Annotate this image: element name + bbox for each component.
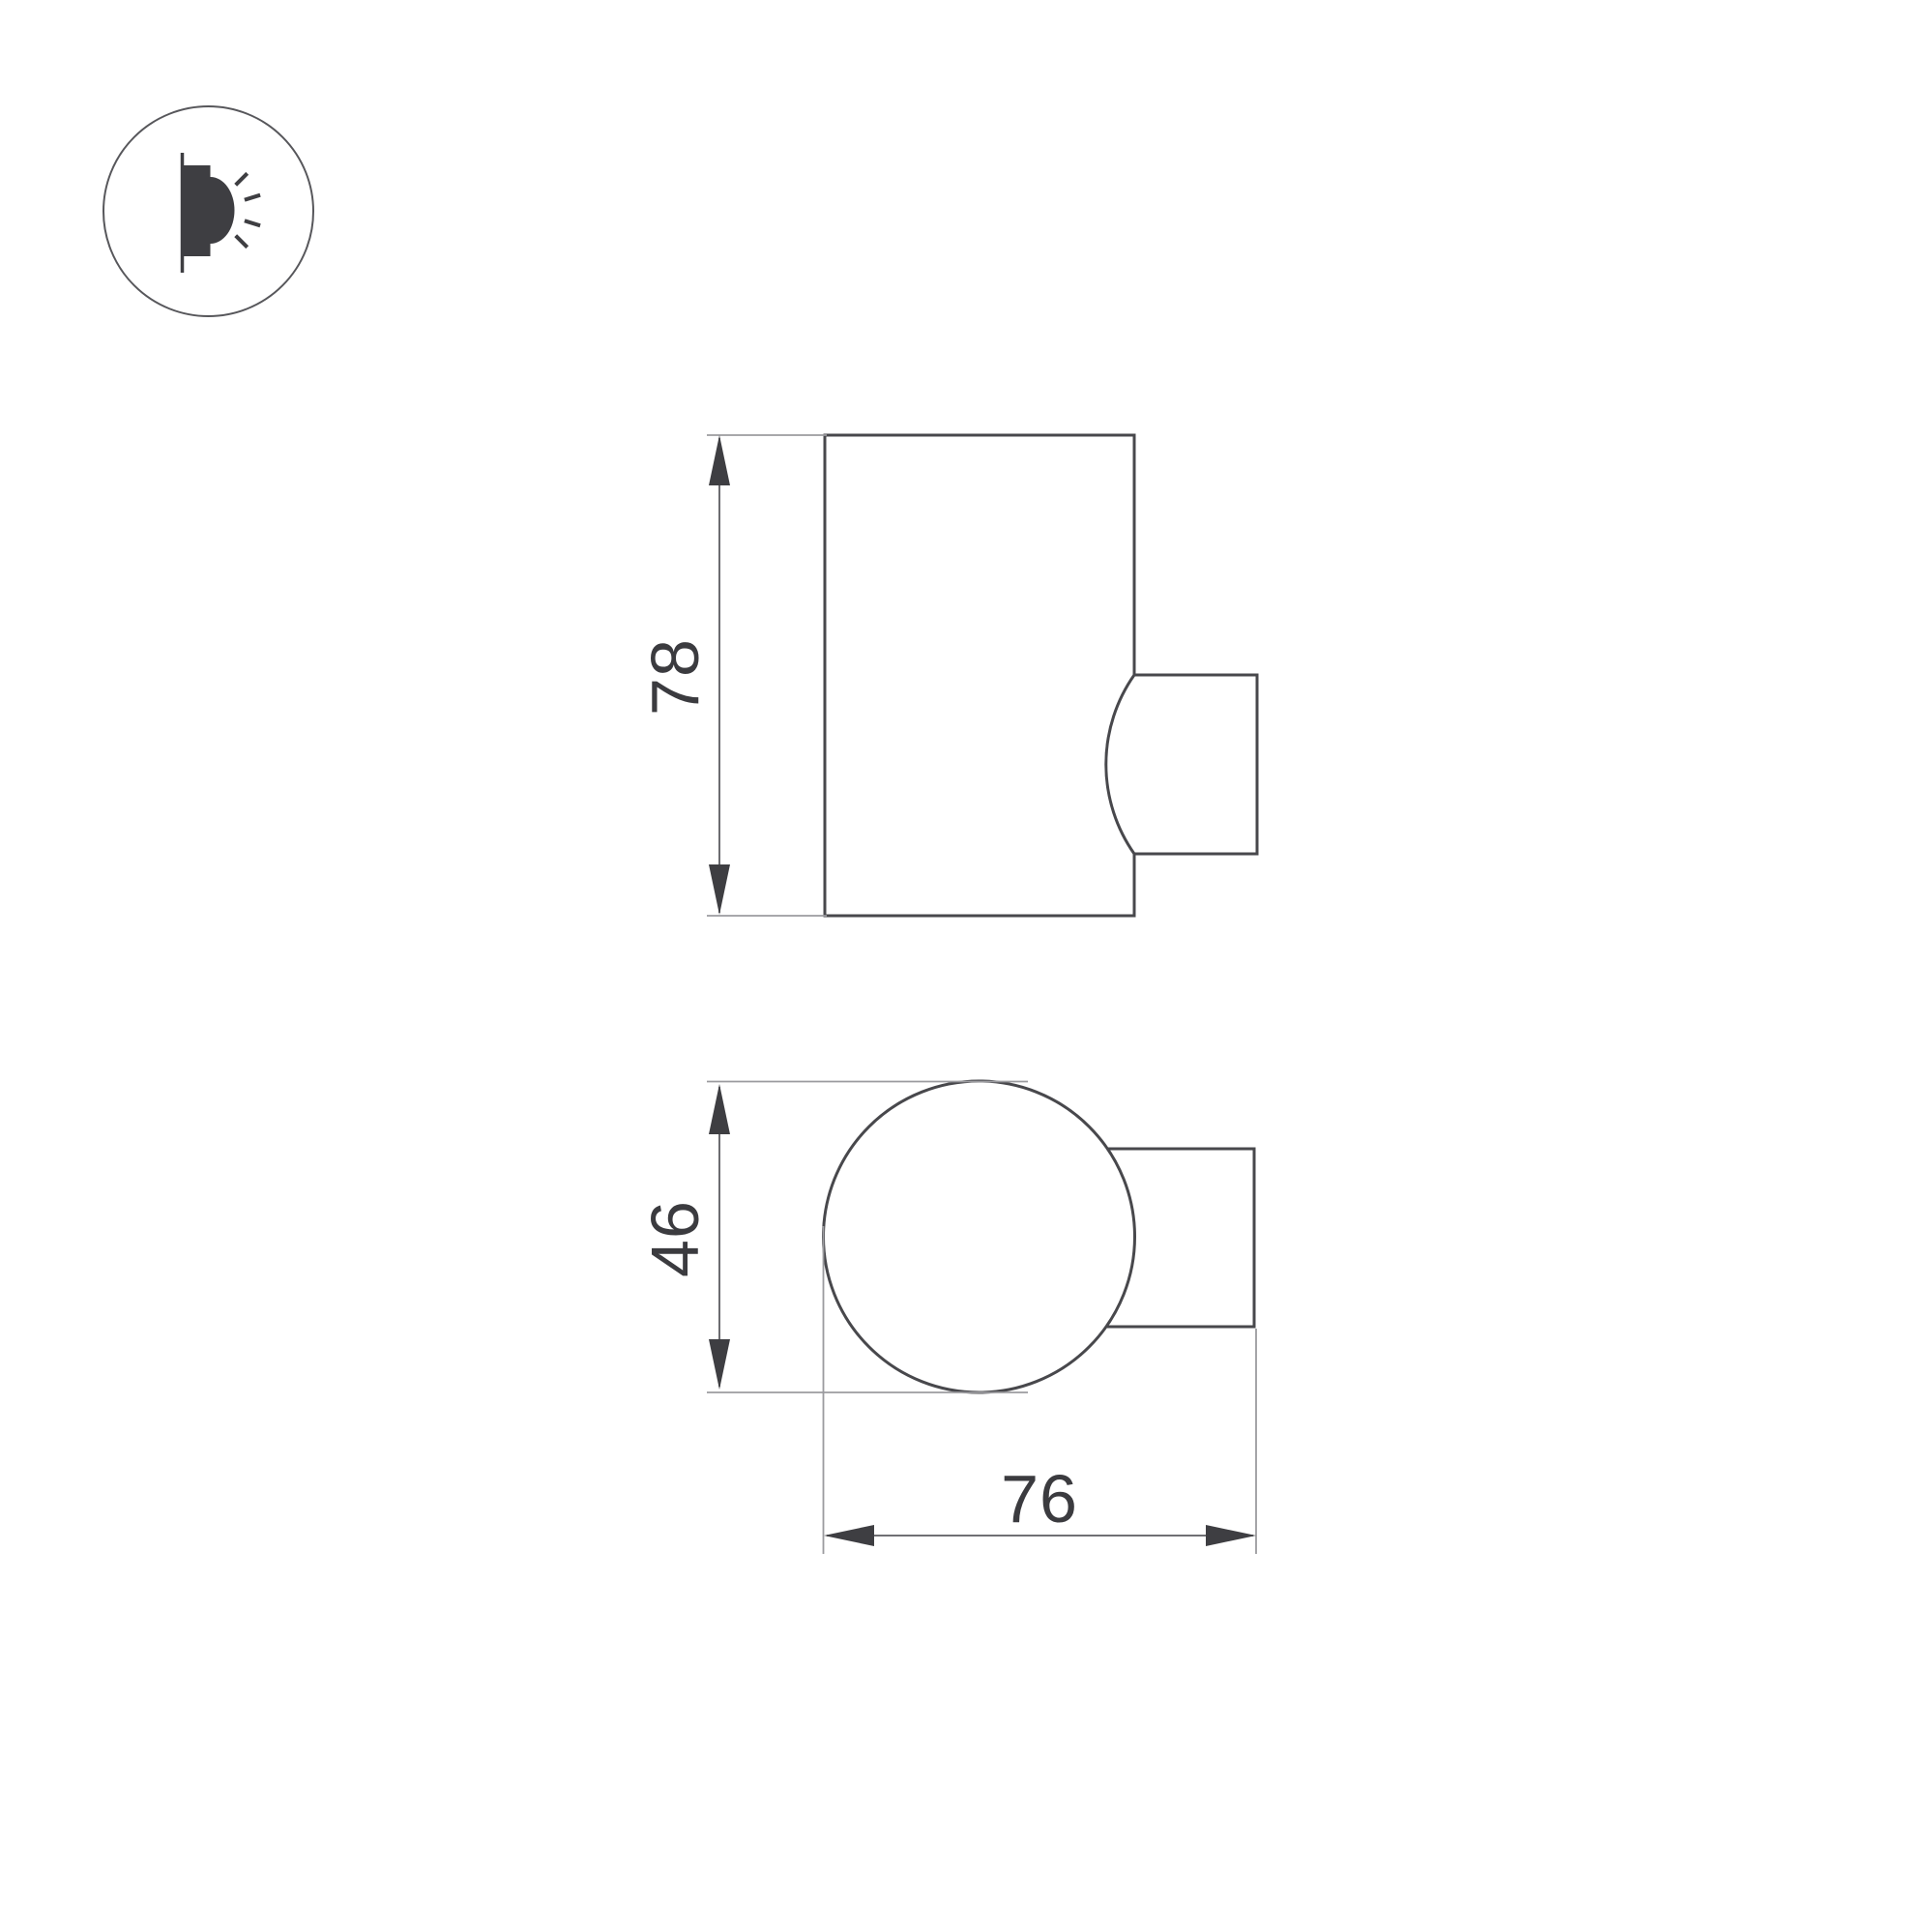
side-view: 78 (637, 435, 1257, 916)
wall-light-badge (103, 106, 313, 316)
arrowhead-up-icon (709, 1084, 730, 1134)
height-value-label: 78 (637, 638, 713, 716)
lamp-body-glyph (184, 165, 211, 256)
arrowhead-up-icon (709, 435, 730, 485)
depth-dimension: 76 (824, 1226, 1257, 1554)
diameter-value-label: 46 (637, 1200, 713, 1277)
side-view-mount-outline (1106, 675, 1257, 854)
depth-value-label: 76 (1001, 1461, 1078, 1537)
side-view-body-outline (825, 435, 1134, 916)
diameter-dimension: 46 (637, 1082, 1028, 1393)
arrowhead-down-icon (709, 864, 730, 915)
arrowhead-right-icon (1206, 1525, 1256, 1546)
light-ray (245, 220, 260, 225)
light-ray (236, 173, 248, 185)
height-dimension: 78 (637, 435, 827, 916)
top-view: 46 76 (637, 1081, 1256, 1554)
top-view-body-outline (824, 1081, 1135, 1392)
dimension-drawing-canvas: 78 46 76 (0, 0, 1932, 1932)
arrowhead-down-icon (709, 1339, 730, 1390)
lamp-lens-glyph (211, 177, 235, 244)
light-ray (236, 236, 248, 248)
light-rays-icon (236, 173, 260, 247)
wall-light-icon (183, 153, 261, 273)
arrowhead-left-icon (824, 1525, 874, 1546)
top-view-mount-outline (1106, 1149, 1254, 1327)
light-ray (245, 195, 260, 200)
